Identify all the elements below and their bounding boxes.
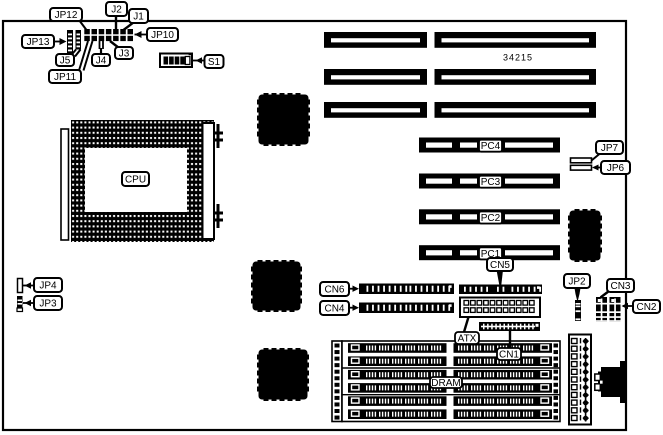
svg-text:CN1: CN1 [499, 350, 519, 361]
svg-text:34215: 34215 [503, 53, 533, 63]
svg-text:JP7: JP7 [601, 143, 619, 154]
svg-text:J3: J3 [119, 49, 130, 60]
svg-text:J1: J1 [133, 12, 144, 23]
svg-text:CPU: CPU [125, 175, 146, 186]
svg-text:ATX: ATX [458, 334, 477, 345]
svg-text:JP2: JP2 [568, 277, 586, 288]
svg-text:PC3: PC3 [481, 177, 501, 188]
svg-text:JP4: JP4 [39, 281, 57, 292]
svg-text:J4: J4 [96, 56, 107, 67]
svg-text:JP10: JP10 [151, 30, 174, 41]
svg-text:JP12: JP12 [55, 10, 78, 21]
svg-text:CN3: CN3 [610, 281, 630, 292]
svg-text:CN5: CN5 [490, 260, 510, 271]
svg-text:J5: J5 [60, 56, 71, 67]
svg-text:JP13: JP13 [27, 37, 50, 48]
svg-text:S1: S1 [208, 57, 221, 68]
svg-text:PC4: PC4 [481, 141, 501, 152]
svg-text:JP11: JP11 [54, 72, 76, 83]
svg-text:CN2: CN2 [636, 302, 656, 313]
svg-text:JP6: JP6 [607, 163, 625, 174]
svg-text:J2: J2 [111, 5, 122, 16]
svg-text:JP3: JP3 [39, 299, 57, 310]
svg-text:CN6: CN6 [324, 285, 344, 296]
svg-text:PC2: PC2 [481, 213, 501, 224]
svg-text:DRAM: DRAM [431, 378, 460, 389]
svg-text:CN4: CN4 [324, 304, 344, 315]
